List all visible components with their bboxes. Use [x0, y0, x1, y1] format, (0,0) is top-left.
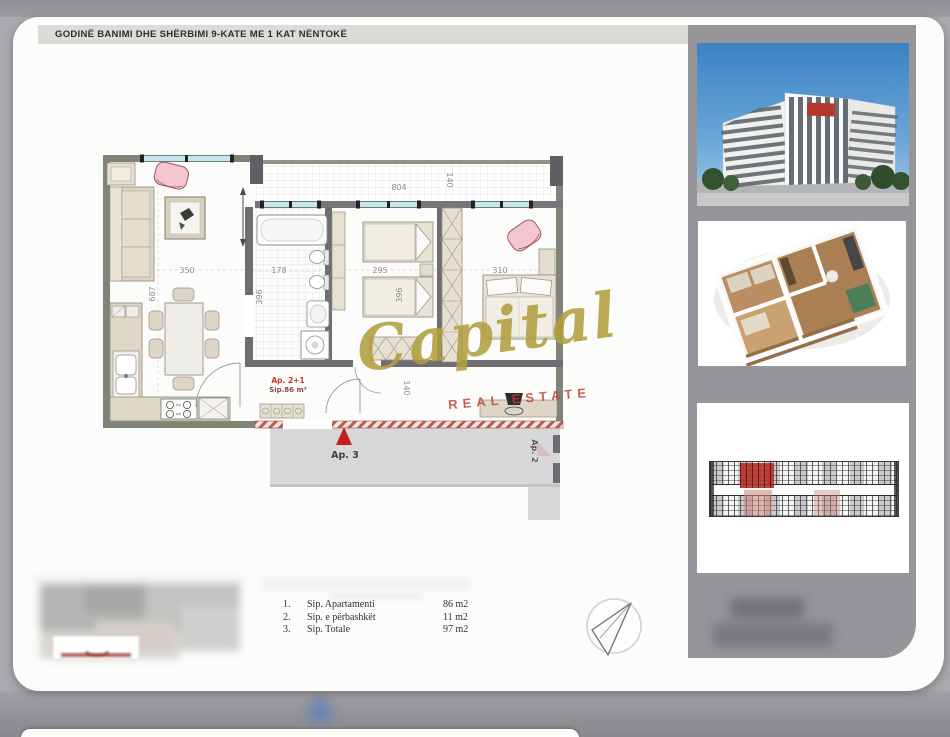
redacted-block — [730, 598, 805, 618]
bathroom-sink — [307, 301, 329, 327]
keyplan-pink-zone-2 — [814, 490, 840, 515]
legend-label: Sip. Apartamenti — [307, 599, 443, 612]
building-exterior-render — [697, 43, 909, 206]
dim-bedroom1-width: 295 — [372, 266, 387, 275]
floor-plan: Ap. 3 Ap. 2 Ap. 2+1 Sip.86 m² 350 687 17… — [95, 145, 590, 540]
redacted-sidebar-text — [705, 593, 845, 655]
north-arrow — [578, 591, 650, 668]
unit-area: Sip.86 m² — [269, 386, 307, 394]
dishwasher — [199, 398, 228, 419]
dim-balcony-depth: 140 — [445, 172, 454, 187]
page-title: GODINË BANIMI DHE SHËRBIMI 9-KATE ME 1 K… — [38, 25, 688, 44]
title-bar: GODINË BANIMI DHE SHËRBIMI 9-KATE ME 1 K… — [38, 25, 688, 44]
rug-with-table — [165, 197, 205, 239]
publisher-logo — [53, 636, 139, 659]
unit-label: Ap. 2+1 — [271, 376, 304, 385]
ap3-label: Ap. 3 — [331, 450, 359, 461]
legend-value: 86 m2 — [443, 599, 513, 612]
legend-no: 3. — [283, 624, 307, 637]
legend-no: 2. — [283, 612, 307, 625]
keyplan-highlighted-unit — [740, 463, 774, 488]
dim-bath-width: 178 — [271, 266, 286, 275]
stove — [161, 399, 197, 419]
bedroom-2 — [483, 217, 556, 339]
balcony — [255, 160, 563, 201]
redacted-block — [713, 623, 833, 647]
faint-redacted-strip — [262, 577, 470, 590]
kitchen — [110, 288, 230, 421]
side-table — [107, 163, 135, 185]
dim-bedroom2-width: 310 — [492, 266, 507, 275]
red-banner — [807, 103, 835, 117]
wardrobe-strip — [442, 208, 462, 362]
double-bed — [483, 275, 556, 339]
background-top-band — [0, 0, 950, 17]
legend-value: 97 m2 — [443, 624, 513, 637]
armchair-bedroom2 — [505, 217, 544, 254]
dim-hall-depth: 140 — [402, 380, 411, 395]
area-legend: 1. Sip. Apartamenti 86 m2 2. Sip. e përb… — [283, 599, 513, 637]
brochure-page: GODINË BANIMI DHE SHËRBIMI 9-KATE ME 1 K… — [0, 0, 950, 737]
building-photo-graphic — [697, 43, 909, 206]
redacted-block — [180, 606, 240, 651]
render-3d-graphic — [698, 221, 906, 366]
nightstand — [420, 264, 433, 276]
underlying-sheet-edge — [21, 729, 579, 737]
floor-plan-drawing: Ap. 3 Ap. 2 Ap. 2+1 Sip.86 m² 350 687 17… — [95, 145, 590, 540]
single-bed-1 — [363, 222, 433, 262]
bathtub — [257, 215, 327, 245]
dim-bedroom1-depth: 396 — [395, 287, 404, 302]
study-nook — [480, 393, 557, 417]
kitchen-sink — [113, 351, 139, 397]
legend-value: 11 m2 — [443, 612, 513, 625]
legend-row: 1. Sip. Apartamenti 86 m2 — [283, 599, 513, 612]
logo-text-blur — [61, 653, 131, 657]
keyplan-left-cap — [710, 462, 714, 516]
washing-machine — [301, 331, 329, 359]
dim-bath-depth: 396 — [255, 289, 264, 304]
keyplan-pink-zone-1 — [744, 490, 772, 515]
apartment-3d-floorplan-render — [698, 221, 906, 366]
blue-smudge — [300, 695, 340, 729]
dim-balcony-length: 804 — [391, 183, 406, 192]
keyplan-right-cap — [894, 462, 898, 516]
legend-label: Sip. e përbashkët — [307, 612, 443, 625]
floor-key-plan — [709, 461, 899, 517]
legend-row: 3. Sip. Totale 97 m2 — [283, 624, 513, 637]
dining-table — [149, 288, 219, 390]
legend-row: 2. Sip. e përbashkët 11 m2 — [283, 612, 513, 625]
shoe-cabinet — [260, 404, 304, 418]
desk-bedroom2 — [539, 249, 555, 275]
living-room — [107, 160, 246, 281]
wardrobe-bedroom1 — [370, 337, 418, 360]
common-corridor — [270, 428, 560, 520]
redacted-block — [85, 584, 145, 614]
dim-living-width: 350 — [179, 266, 194, 275]
sofa — [110, 187, 154, 281]
dim-living-depth: 687 — [148, 286, 157, 301]
legend-no: 1. — [283, 599, 307, 612]
redacted-block — [35, 576, 243, 584]
ap2-label: Ap. 2 — [530, 439, 539, 462]
compass-north-arrow-icon — [578, 591, 650, 663]
legend-label: Sip. Totale — [307, 624, 443, 637]
